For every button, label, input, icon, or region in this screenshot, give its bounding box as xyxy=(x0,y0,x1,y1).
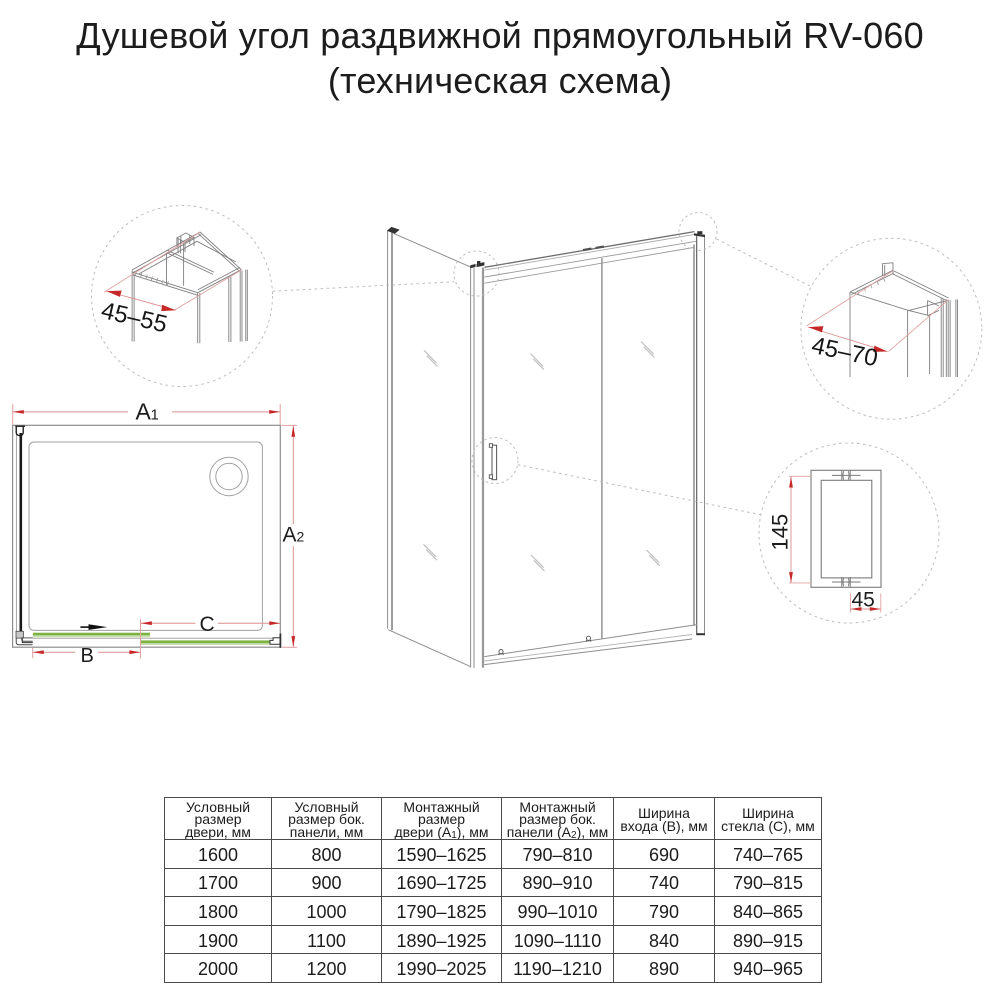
svg-text:C: C xyxy=(200,613,215,636)
svg-text:A: A xyxy=(283,524,297,547)
svg-text:45–70: 45–70 xyxy=(809,332,880,372)
svg-text:45: 45 xyxy=(852,589,875,612)
svg-text:B: B xyxy=(81,645,94,667)
svg-text:2: 2 xyxy=(297,529,305,545)
svg-text:1: 1 xyxy=(151,407,159,424)
svg-text:145: 145 xyxy=(768,514,793,551)
svg-text:A: A xyxy=(136,399,152,425)
